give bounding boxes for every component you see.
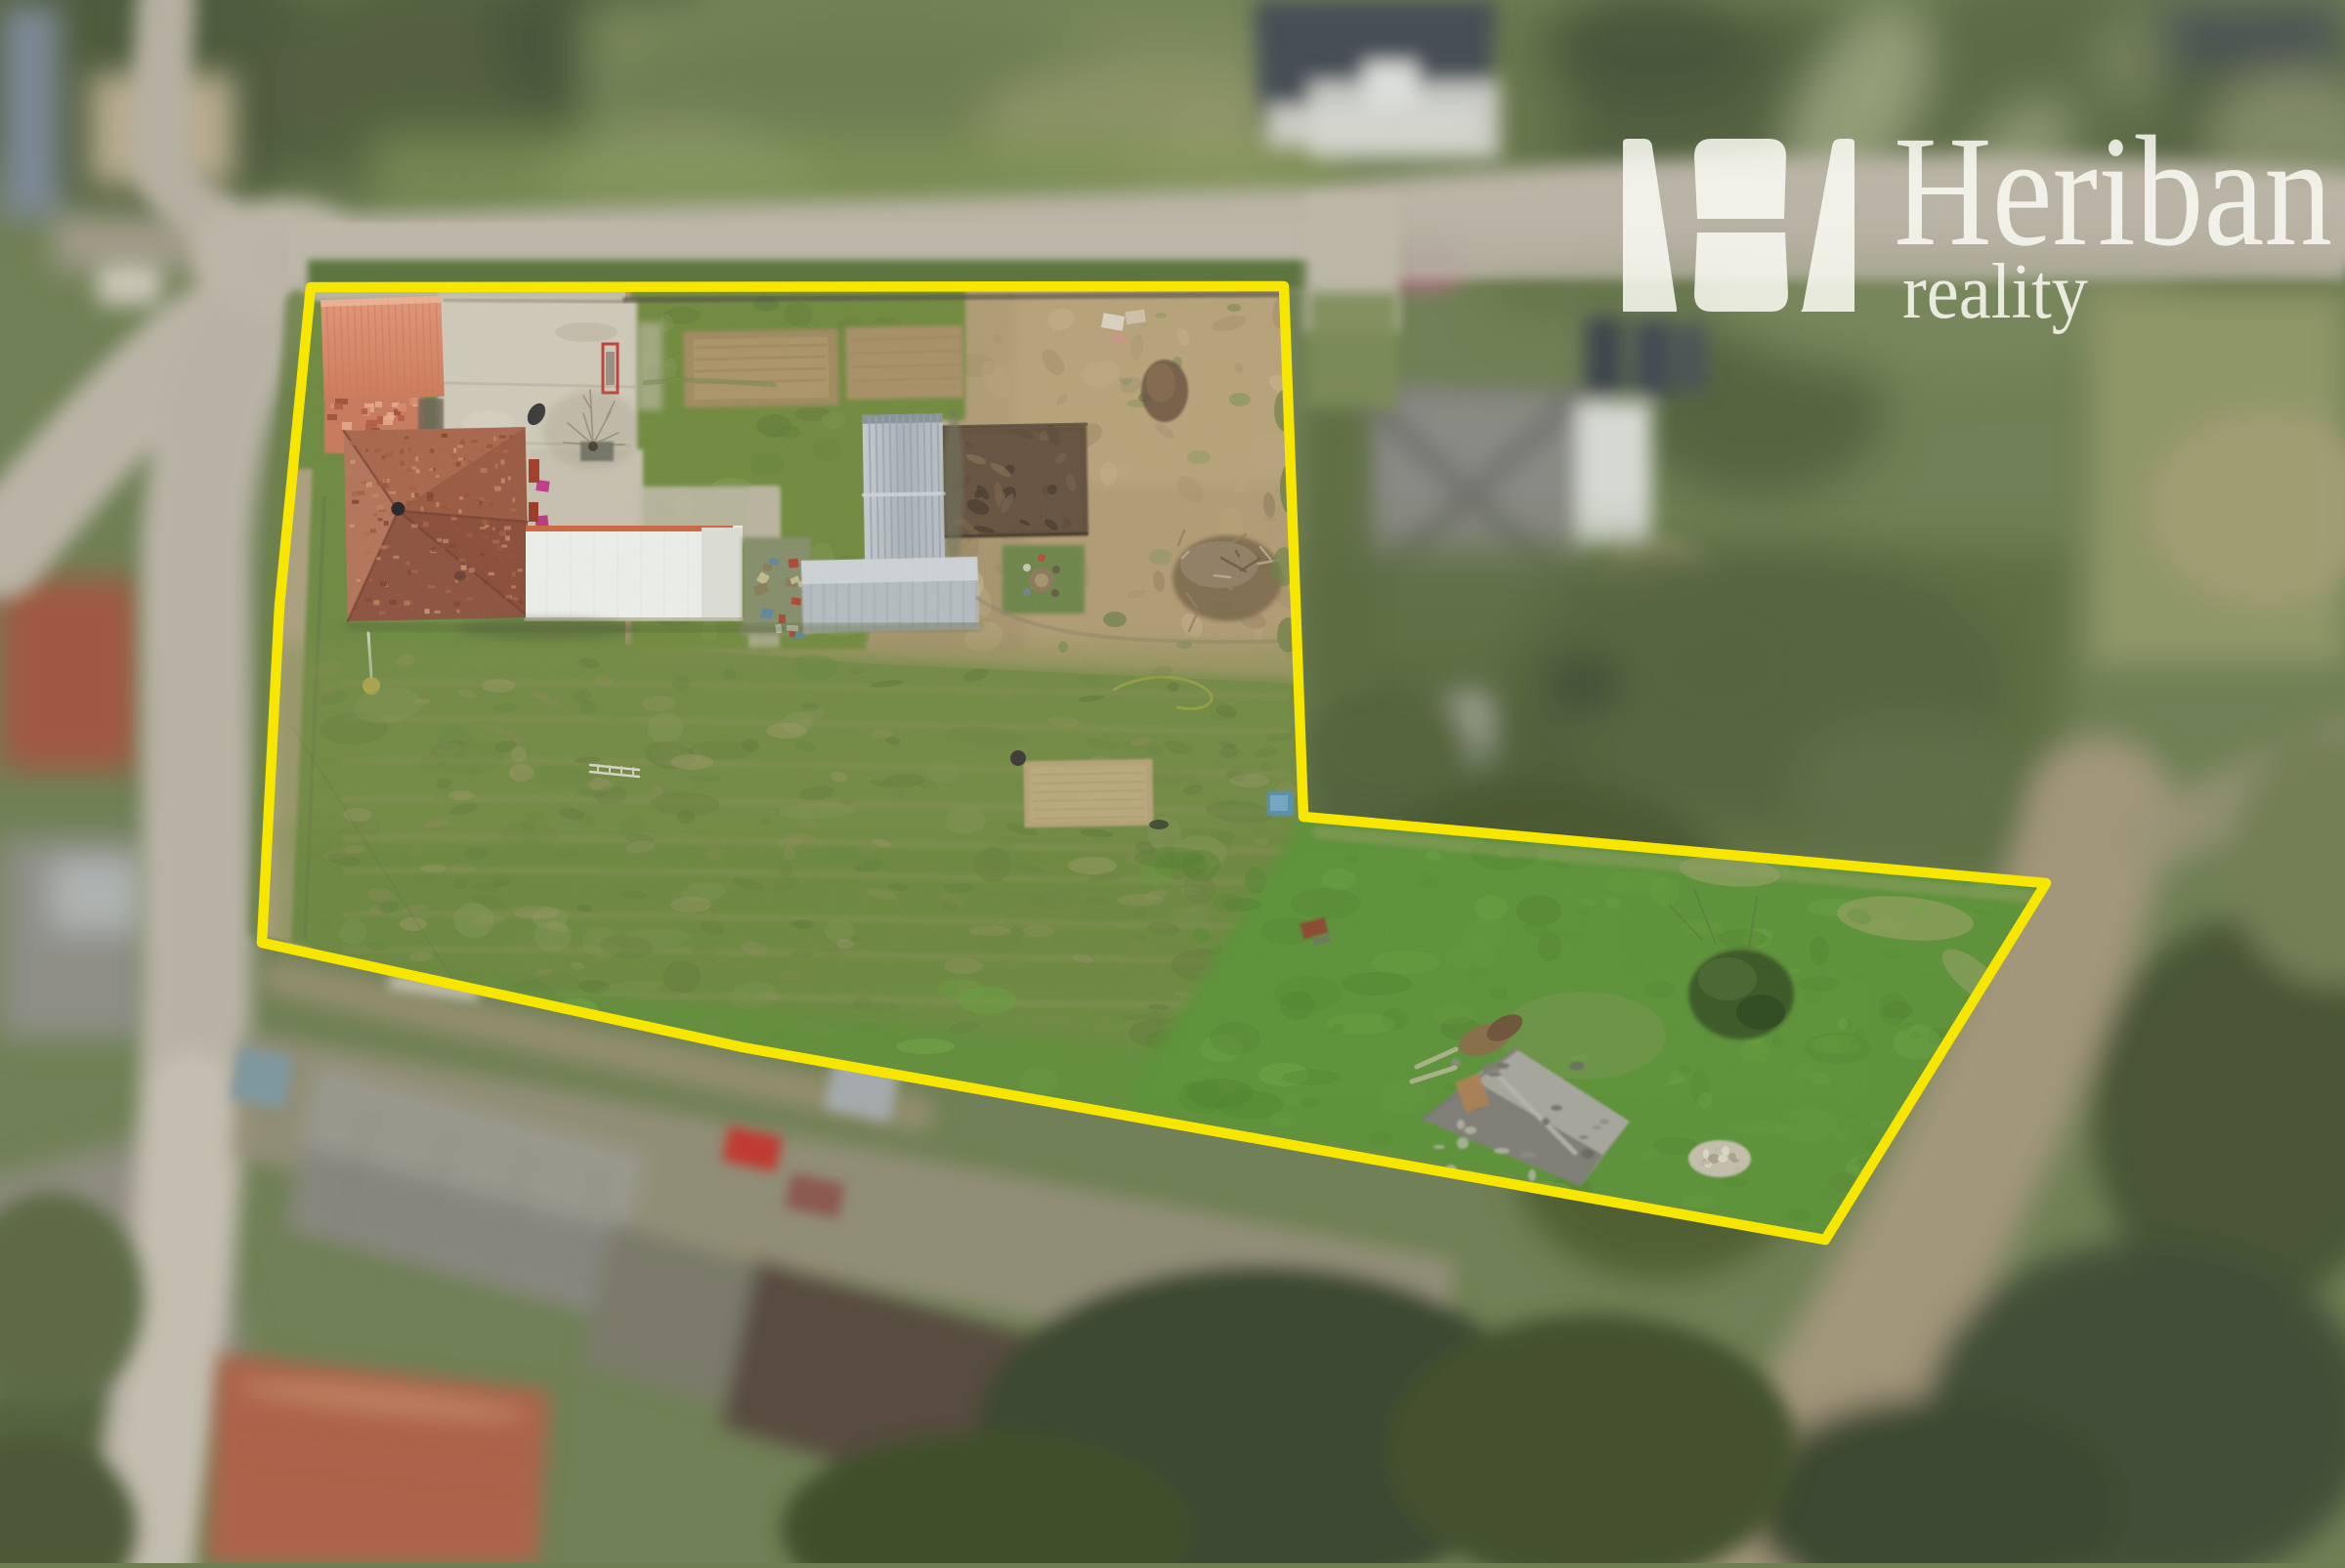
svg-text:reality: reality [1902, 249, 2088, 335]
